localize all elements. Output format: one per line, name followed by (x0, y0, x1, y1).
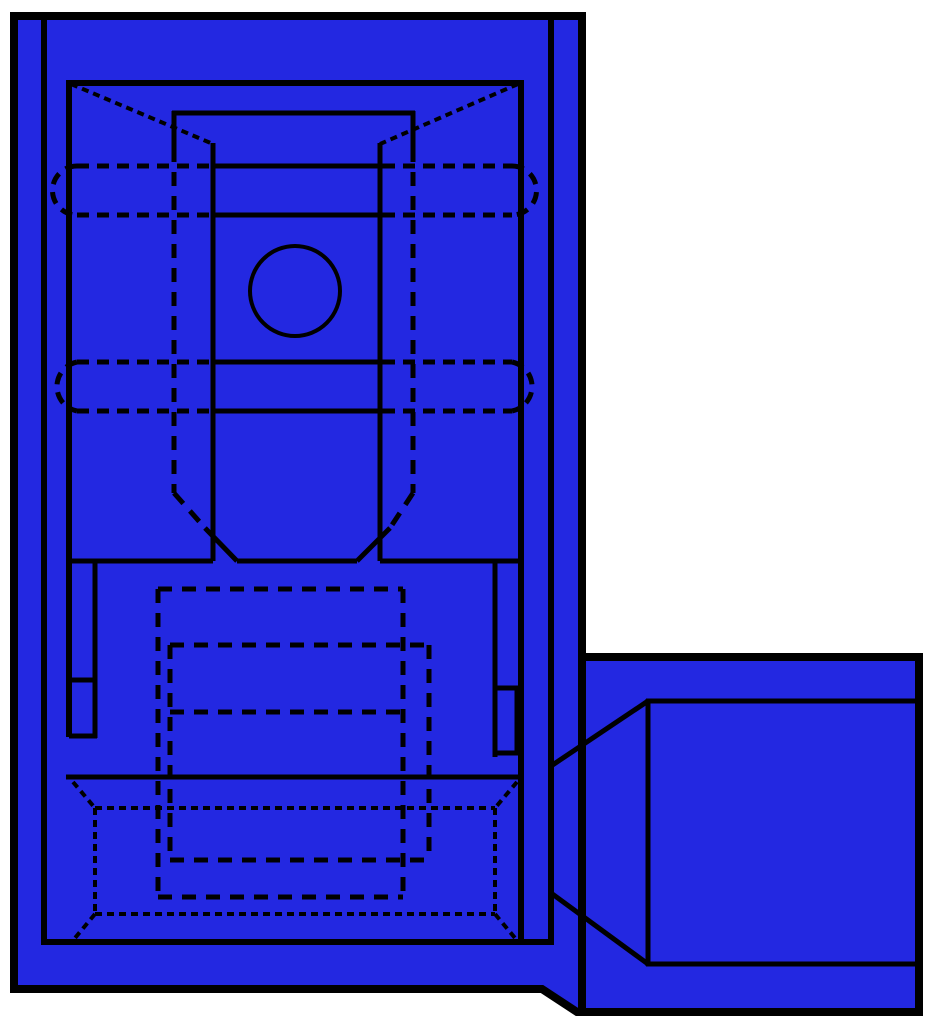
terminal-technical-drawing (0, 0, 936, 1024)
drawing-page (0, 0, 936, 1024)
terminal-drawing-canvas (0, 0, 936, 1024)
